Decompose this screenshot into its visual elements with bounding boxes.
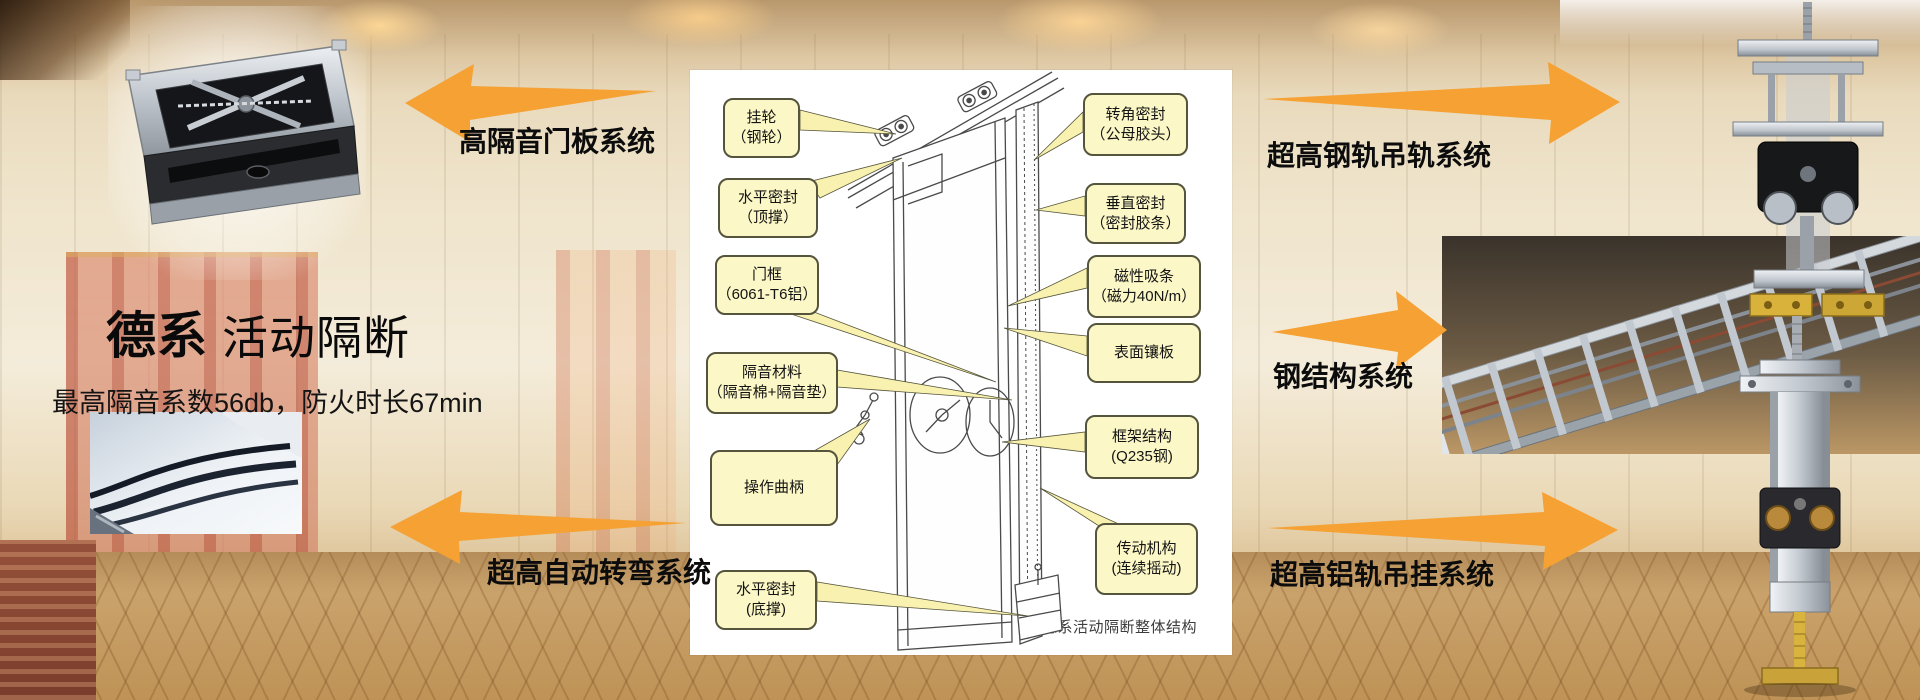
- hanger-assembly: [1733, 2, 1884, 316]
- callout-operating-crank: 操作曲柄: [710, 450, 838, 526]
- callout-text: 表面镶板: [1114, 343, 1174, 363]
- callout-surface-panel: 表面镶板: [1087, 323, 1201, 383]
- door-panel-edge: [1016, 102, 1042, 644]
- label-door-panel-system: 高隔音门板系统: [459, 120, 655, 160]
- callout-text: 隔音材料: [742, 363, 802, 383]
- brand-title: 德系 活动隔断: [106, 306, 410, 368]
- steel-rail-hanger-photo: [1698, 2, 1918, 332]
- callout-text: （密封胶条）: [1090, 214, 1180, 234]
- callout-text: （隔音棉+隔音垫）: [708, 383, 837, 403]
- callout-text: 挂轮: [746, 108, 776, 128]
- lit-wall-strip: [556, 250, 676, 552]
- callout-frame-structure: 框架结构 (Q235钢): [1085, 415, 1199, 479]
- callout-text: （钢轮）: [731, 128, 791, 148]
- spec-subtitle: 最高隔音系数56db，防火时长67min: [52, 381, 483, 420]
- slide-canvas: 挂轮 （钢轮） 水平密封 （顶撑） 门框 （6061-T6铝） 隔音材料 （隔音…: [0, 0, 1920, 700]
- callout-text: (底撑): [746, 600, 786, 620]
- label-auto-turn-system: 超高自动转弯系统: [487, 551, 711, 591]
- callout-sound-insulation: 隔音材料 （隔音棉+隔音垫）: [706, 352, 838, 414]
- callout-horizontal-seal-bottom: 水平密封 (底撑): [715, 570, 817, 630]
- callout-text: （顶撑）: [738, 208, 798, 228]
- diagram-panel: 挂轮 （钢轮） 水平密封 （顶撑） 门框 （6061-T6铝） 隔音材料 （隔音…: [690, 70, 1232, 655]
- callout-transmission: 传动机构 (连续摇动): [1095, 523, 1198, 595]
- aluminum-rail-hanger-photo: [1700, 316, 1900, 700]
- alu-hanger-assembly: [1740, 316, 1860, 697]
- carpet-red-left: [0, 540, 96, 700]
- callout-text: （磁力40N/m）: [1092, 287, 1196, 307]
- callout-text: (连续摇动): [1112, 559, 1182, 579]
- callout-door-frame: 门框 （6061-T6铝）: [715, 255, 819, 315]
- callout-vertical-seal: 垂直密封 （密封胶条）: [1085, 183, 1186, 244]
- label-steel-structure-system: 钢结构系统: [1273, 355, 1413, 395]
- callout-text: 转角密封: [1105, 105, 1165, 125]
- callout-text: （6061-T6铝）: [717, 285, 818, 305]
- door-panel-photo: [108, 6, 366, 280]
- callout-text: 水平密封: [736, 580, 796, 600]
- brand-name: 德系: [106, 296, 208, 368]
- label-steel-rail-system: 超高钢轨吊轨系统: [1267, 134, 1491, 174]
- trolley-rear: [957, 80, 999, 113]
- callout-text: 水平密封: [738, 188, 798, 208]
- callout-text: 框架结构: [1112, 427, 1172, 447]
- callout-text: 传动机构: [1116, 539, 1176, 559]
- callout-text: 操作曲柄: [744, 478, 804, 498]
- callout-hanging-wheel: 挂轮 （钢轮）: [723, 98, 800, 158]
- curved-track-photo: [90, 412, 302, 534]
- partition-line-art: [848, 72, 1064, 650]
- callout-text: 磁性吸条: [1114, 267, 1174, 287]
- callout-corner-seal: 转角密封 （公母胶头）: [1083, 93, 1188, 156]
- callout-text: (Q235钢): [1111, 447, 1173, 467]
- callout-horizontal-seal-top: 水平密封 （顶撑）: [718, 178, 818, 238]
- callout-text: 门框: [752, 265, 782, 285]
- brand-suffix: 活动隔断: [222, 302, 410, 368]
- label-alu-rail-system: 超高铝轨吊挂系统: [1270, 553, 1494, 593]
- callout-text: （公母胶头）: [1090, 125, 1180, 145]
- callout-magnetic-strip: 磁性吸条 （磁力40N/m）: [1087, 255, 1201, 318]
- callout-text: 垂直密封: [1105, 194, 1165, 214]
